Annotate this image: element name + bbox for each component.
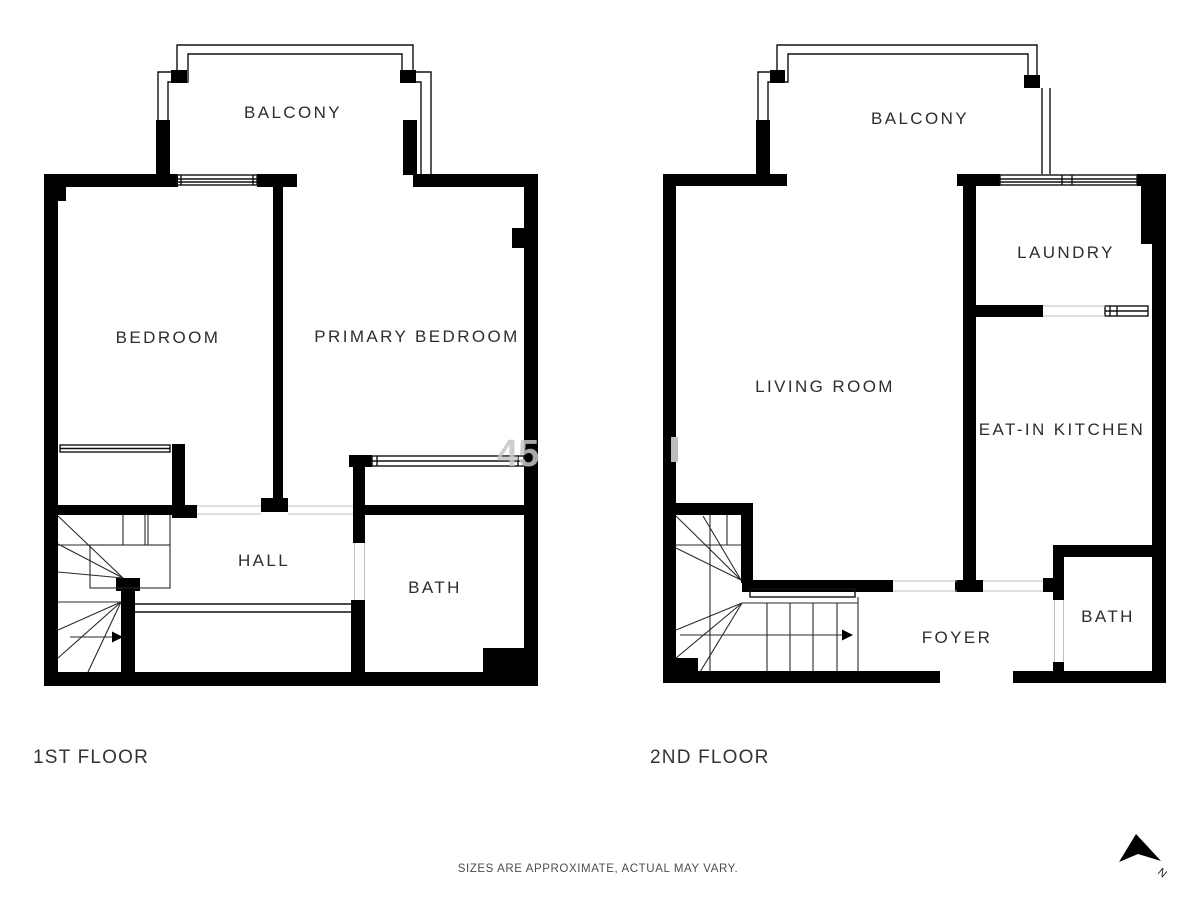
- floor-1-plan: BALCONY BEDROOM PRIMARY BEDROOM HALL BAT…: [33, 45, 538, 768]
- room-label-eat-in-kitchen: EAT-IN KITCHEN: [979, 420, 1145, 439]
- floor-2-plan: BALCONY LIVING ROOM LAUNDRY EAT-IN KITCH…: [650, 45, 1166, 768]
- watermark-bar: [671, 437, 678, 462]
- north-arrow-icon: N: [1119, 834, 1169, 880]
- room-label-balcony-2: BALCONY: [871, 109, 969, 128]
- room-label-bath-2: BATH: [1081, 607, 1135, 626]
- floor-2-title: 2ND FLOOR: [650, 747, 770, 768]
- room-label-living-room: LIVING ROOM: [755, 377, 895, 396]
- north-label: N: [1155, 866, 1169, 880]
- floor-1-title: 1ST FLOOR: [33, 747, 149, 768]
- room-label-hall: HALL: [238, 551, 290, 570]
- room-label-bedroom: BEDROOM: [116, 328, 221, 347]
- floor1-walls: [44, 70, 538, 686]
- floor2-stair-direction-arrow: [842, 630, 853, 641]
- floor2-openings: [893, 306, 1105, 662]
- floor2-stairs: [675, 515, 858, 672]
- floor1-stairs: [58, 515, 170, 672]
- room-label-bath-1: BATH: [408, 578, 462, 597]
- floor-plan-page: BALCONY BEDROOM PRIMARY BEDROOM HALL BAT…: [0, 0, 1200, 900]
- disclaimer-text: SIZES ARE APPROXIMATE, ACTUAL MAY VARY.: [458, 863, 739, 875]
- floor-plan-drawing: BALCONY BEDROOM PRIMARY BEDROOM HALL BAT…: [0, 0, 1200, 900]
- room-label-balcony-1: BALCONY: [244, 103, 342, 122]
- room-label-foyer: FOYER: [922, 628, 993, 647]
- floor1-windows: [60, 175, 524, 612]
- room-label-laundry: LAUNDRY: [1017, 243, 1115, 262]
- room-label-primary-bedroom: PRIMARY BEDROOM: [314, 327, 519, 346]
- watermark-text: 45: [497, 433, 539, 475]
- watermark: 45: [497, 433, 678, 475]
